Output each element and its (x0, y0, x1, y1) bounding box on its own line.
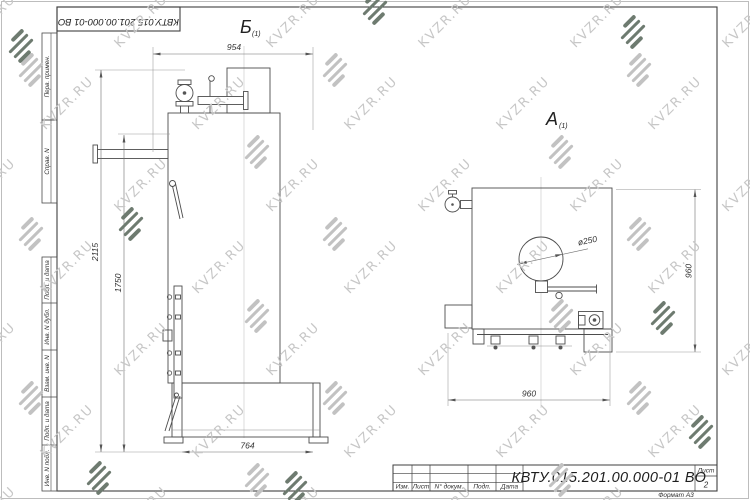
kvzr-logo-icon (621, 216, 656, 251)
watermark-text: KVZR.RU (720, 484, 750, 500)
kvzr-logo-icon (621, 380, 656, 415)
watermark-text: KVZR.RU (342, 74, 401, 133)
watermark-text: KVZR.RU (416, 0, 475, 51)
kvzr-logo-icon (543, 134, 578, 169)
watermark-text: KVZR.RU (264, 484, 323, 500)
drawing-sheet: Изм. Лист N° докум. Подп. Дата Лист 2 Фо… (0, 0, 750, 500)
kvzr-logo-icon (277, 470, 312, 500)
watermark-text: KVZR.RU (646, 238, 705, 297)
watermark-text: KVZR.RU (646, 74, 705, 133)
watermark-text: KVZR.RU (0, 484, 19, 500)
watermark-text: KVZR.RU (416, 320, 475, 379)
kvzr-logo-icon (621, 52, 656, 87)
watermark-text: KVZR.RU (38, 74, 97, 133)
watermark-text: KVZR.RU (112, 0, 171, 51)
watermark-text: KVZR.RU (0, 0, 19, 51)
kvzr-logo-icon (113, 206, 148, 241)
watermark-text: KVZR.RU (568, 320, 627, 379)
watermark-text: KVZR.RU (494, 238, 553, 297)
kvzr-logo-icon (543, 462, 578, 497)
watermark-text: KVZR.RU (38, 402, 97, 461)
watermark-layer: KVZR.RUKVZR.RUKVZR.RUKVZR.RUKVZR.RUKVZR.… (0, 0, 750, 500)
watermark-text: KVZR.RU (646, 402, 705, 461)
watermark-text: KVZR.RU (190, 74, 249, 133)
watermark-text: KVZR.RU (38, 238, 97, 297)
kvzr-logo-icon (317, 52, 352, 87)
kvzr-logo-icon (645, 300, 680, 335)
kvzr-logo-icon (317, 380, 352, 415)
watermark-text: KVZR.RU (342, 238, 401, 297)
watermark-text: KVZR.RU (112, 484, 171, 500)
watermark-text: KVZR.RU (342, 402, 401, 461)
watermark-text: KVZR.RU (190, 402, 249, 461)
kvzr-logo-icon (615, 14, 650, 49)
watermark-text: KVZR.RU (264, 0, 323, 51)
kvzr-logo-icon (13, 380, 48, 415)
watermark-text: KVZR.RU (568, 484, 627, 500)
watermark-text: KVZR.RU (720, 0, 750, 51)
watermark-text: KVZR.RU (416, 156, 475, 215)
watermark-text: KVZR.RU (112, 156, 171, 215)
watermark-text: KVZR.RU (568, 156, 627, 215)
watermark-text: KVZR.RU (264, 156, 323, 215)
kvzr-logo-icon (81, 460, 116, 495)
kvzr-logo-icon (239, 298, 274, 333)
watermark-text: KVZR.RU (416, 484, 475, 500)
kvzr-logo-icon (683, 414, 718, 449)
kvzr-logo-icon (3, 28, 38, 63)
kvzr-logo-icon (239, 462, 274, 497)
kvzr-logo-icon (239, 134, 274, 169)
watermark-text: KVZR.RU (494, 74, 553, 133)
kvzr-logo-icon (543, 298, 578, 333)
watermark-text: KVZR.RU (190, 238, 249, 297)
watermark-text: KVZR.RU (720, 320, 750, 379)
watermark-text: KVZR.RU (264, 320, 323, 379)
kvzr-logo-icon (13, 52, 48, 87)
watermark-text: KVZR.RU (494, 402, 553, 461)
kvzr-logo-icon (317, 216, 352, 251)
watermark-text: KVZR.RU (0, 320, 19, 379)
watermark-text: KVZR.RU (720, 156, 750, 215)
kvzr-logo-icon (357, 0, 392, 26)
watermark-text: KVZR.RU (0, 156, 19, 215)
kvzr-logo-icon (13, 216, 48, 251)
watermark-text: KVZR.RU (568, 0, 627, 51)
watermark-text: KVZR.RU (112, 320, 171, 379)
